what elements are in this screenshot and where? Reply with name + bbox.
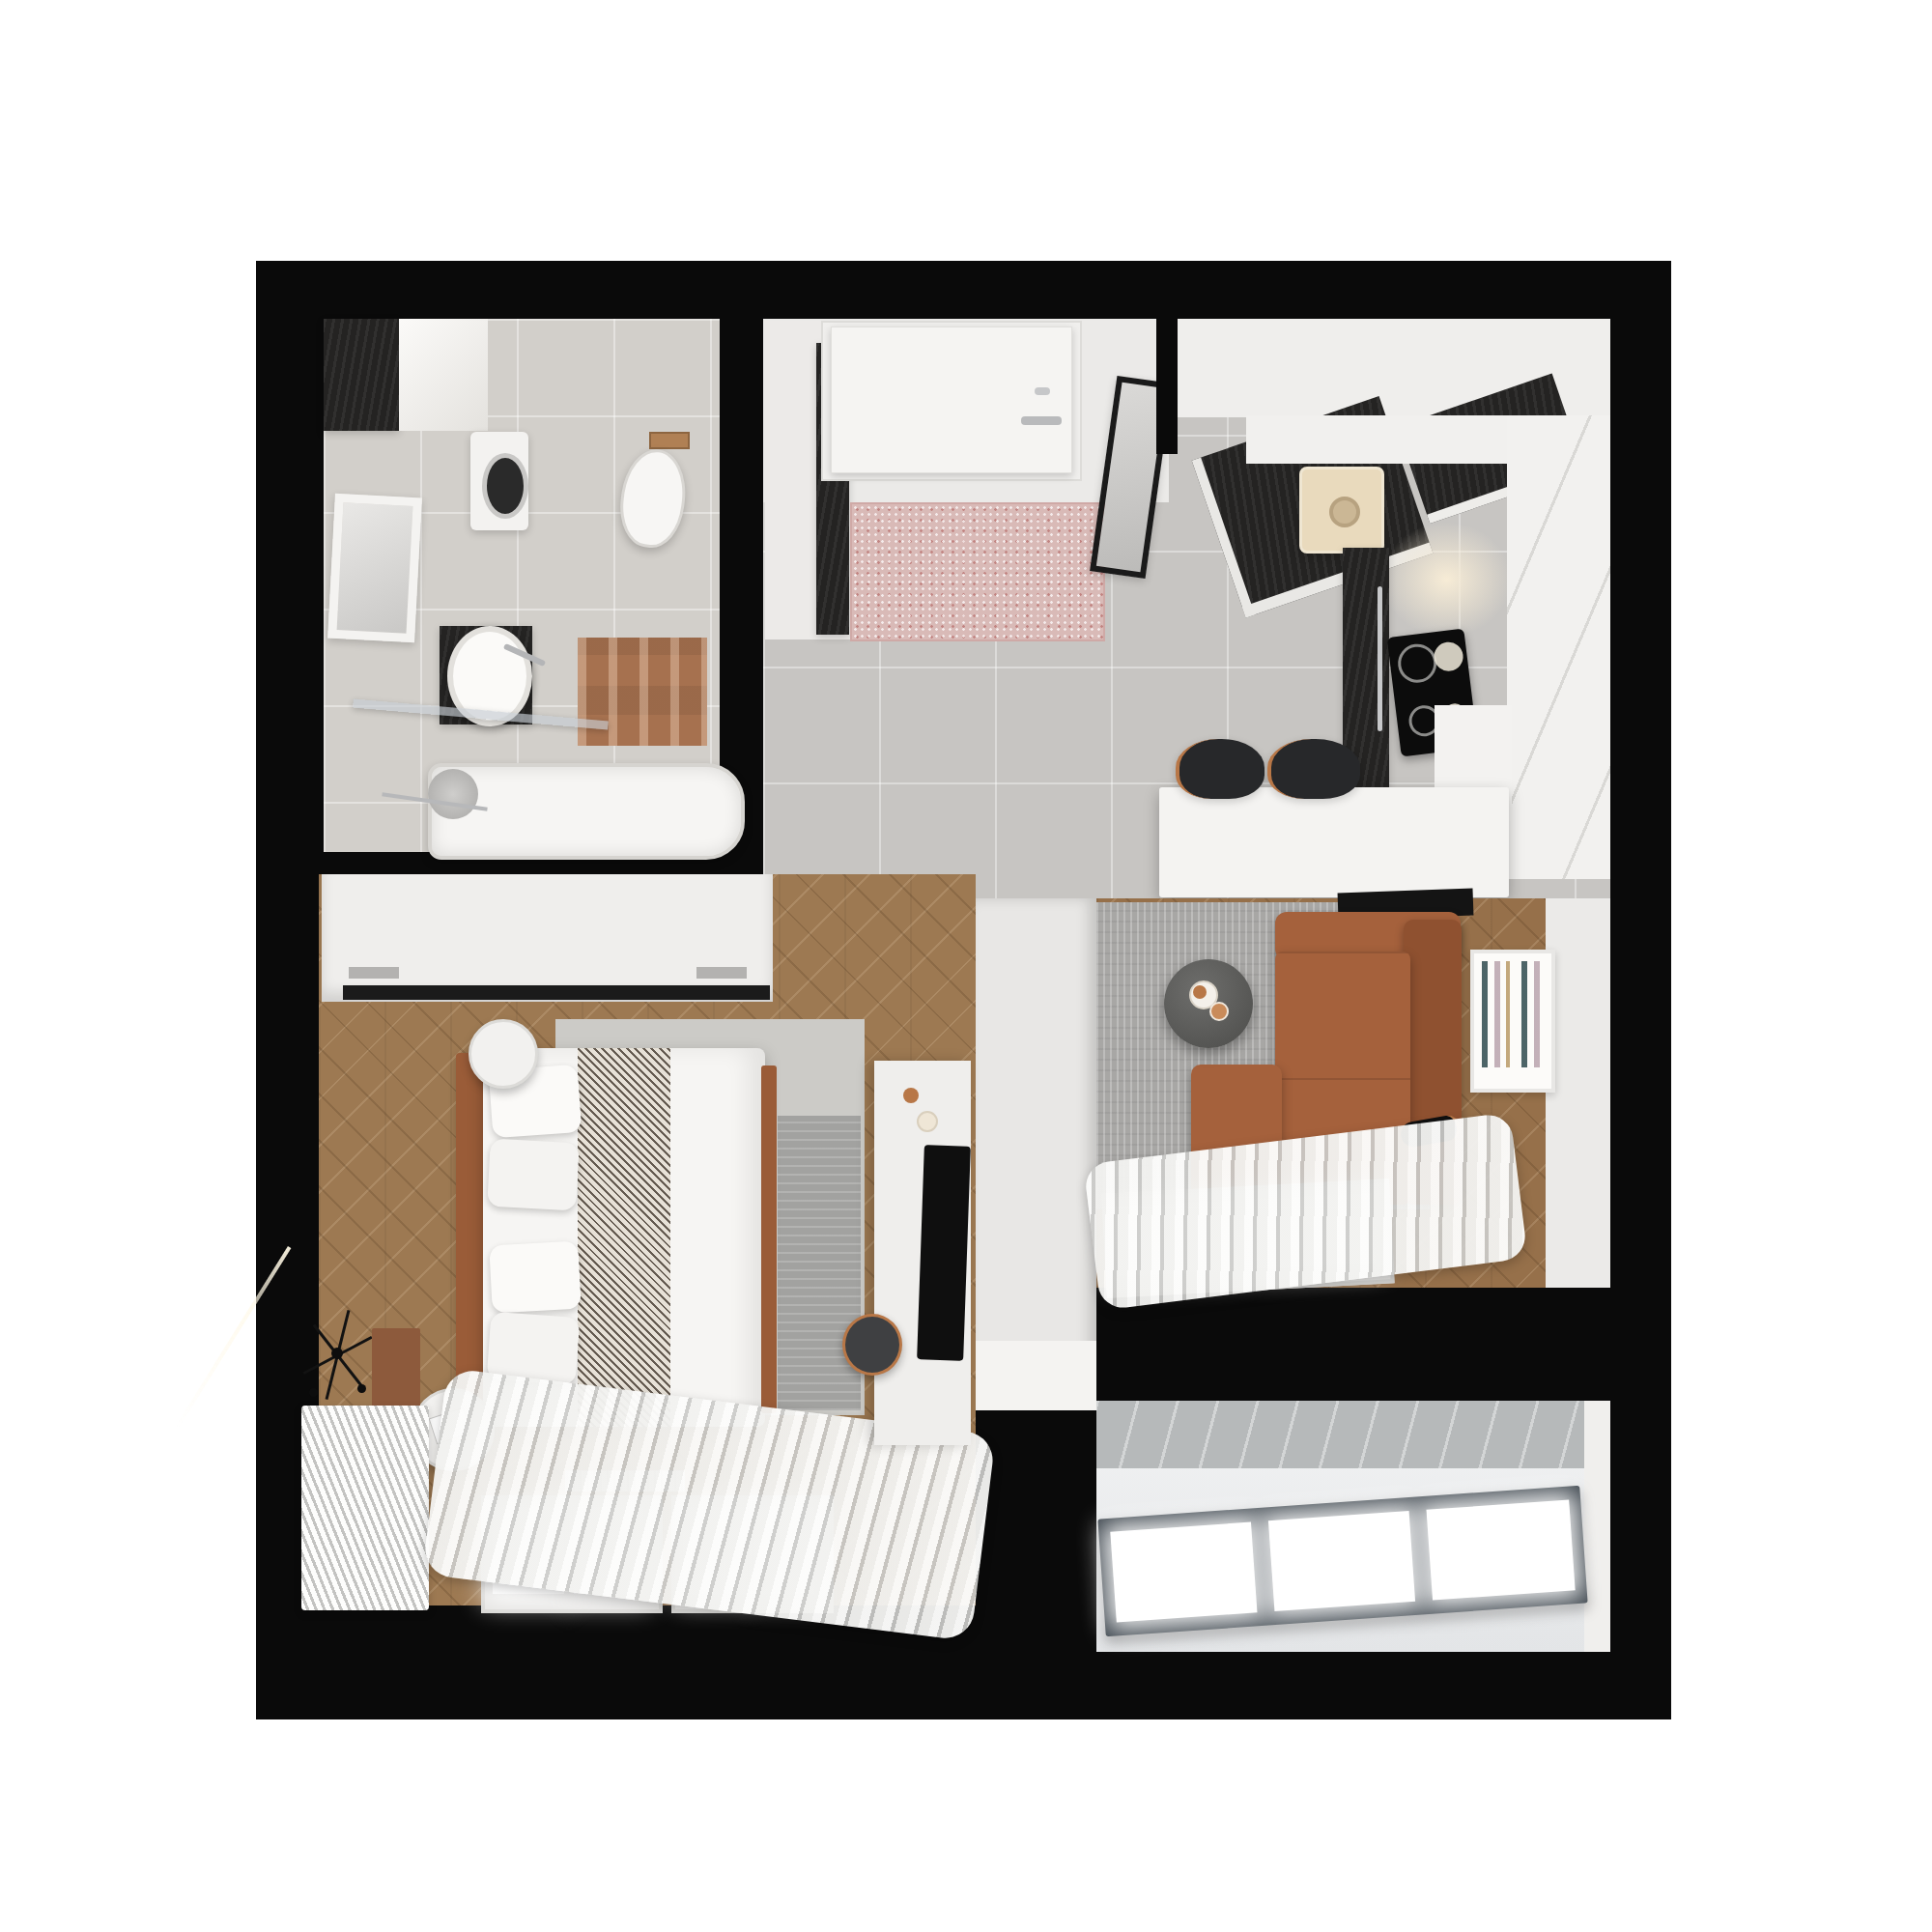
floor-plan-stage (0, 0, 1932, 1932)
bed-throw-blanket (578, 1048, 670, 1427)
washing-machine (470, 432, 528, 530)
room-bedroom (319, 874, 976, 1605)
bedroom-media-cabinet (874, 1061, 971, 1445)
sconce-bulb-icon (331, 1348, 343, 1359)
kitchen-sink (1299, 467, 1384, 554)
room-balcony (1096, 1401, 1610, 1652)
kitchen-counter-glow (1381, 522, 1512, 638)
bar-stool (1267, 739, 1360, 799)
bedroom-rug-dark (778, 1116, 861, 1410)
bathroom-wall-cabinet (324, 319, 399, 431)
door-handle-icon (1021, 416, 1062, 425)
bed-headboard (456, 1053, 485, 1425)
coffee-table (1164, 959, 1253, 1048)
balcony-glazing (1097, 1486, 1587, 1637)
tray-plate-icon (1193, 985, 1207, 999)
bed-pillow (487, 1139, 580, 1211)
room-entry-kitchen (763, 319, 1610, 898)
entry-kitchen-wall-stub (1156, 319, 1178, 454)
bathroom-shelf (399, 319, 488, 431)
side-table (469, 1019, 538, 1089)
glazing-pane (1110, 1522, 1257, 1623)
wardrobe-rail (343, 985, 770, 1000)
front-door (831, 327, 1072, 473)
toilet (615, 445, 691, 551)
kitchen-right-counter (1507, 415, 1610, 879)
tv (917, 1145, 971, 1361)
toilet-flush-plate (649, 432, 690, 449)
radiator (301, 1406, 429, 1610)
bath-mat (578, 638, 707, 746)
wall-art (1470, 950, 1555, 1093)
art-strokes (1482, 961, 1540, 1067)
bathtub (428, 763, 745, 860)
sconce-bulb-icon (309, 1388, 318, 1397)
wardrobe-handle-icon (696, 967, 747, 979)
sconce-bulb-icon (357, 1384, 366, 1393)
shower-head-icon (428, 769, 478, 819)
washing-machine-drum-icon (482, 453, 528, 519)
kitchen-sink-drain-icon (1329, 497, 1360, 527)
burner-icon (1396, 641, 1439, 685)
room-living (1096, 898, 1610, 1288)
glazing-pane (1427, 1500, 1576, 1601)
bedroom-wardrobe (322, 874, 773, 1002)
bathroom-mirror (327, 494, 422, 643)
living-right-wall (1546, 898, 1610, 1288)
oven-handle-icon (1378, 586, 1382, 731)
wardrobe-handle-icon (349, 967, 399, 979)
partition-wall (976, 898, 1096, 1410)
partition-cabinet (976, 1341, 1096, 1410)
bar-stool (1176, 739, 1264, 799)
entry-door-mat (850, 502, 1105, 641)
bedroom-stool (842, 1314, 902, 1376)
bed-footboard (761, 1065, 777, 1413)
kitchen-bar-island (1159, 787, 1509, 897)
balcony-concrete-sill (1096, 1401, 1610, 1468)
bed-pillow (489, 1241, 582, 1314)
cup-icon (917, 1111, 938, 1132)
glazing-pane (1268, 1511, 1415, 1611)
door-lock-icon (1035, 387, 1050, 395)
burner-icon (1433, 640, 1464, 672)
balcony-right-wall (1584, 1401, 1610, 1652)
cup-icon (903, 1088, 919, 1103)
cup-icon (1209, 1002, 1229, 1021)
room-bathroom (324, 319, 720, 852)
